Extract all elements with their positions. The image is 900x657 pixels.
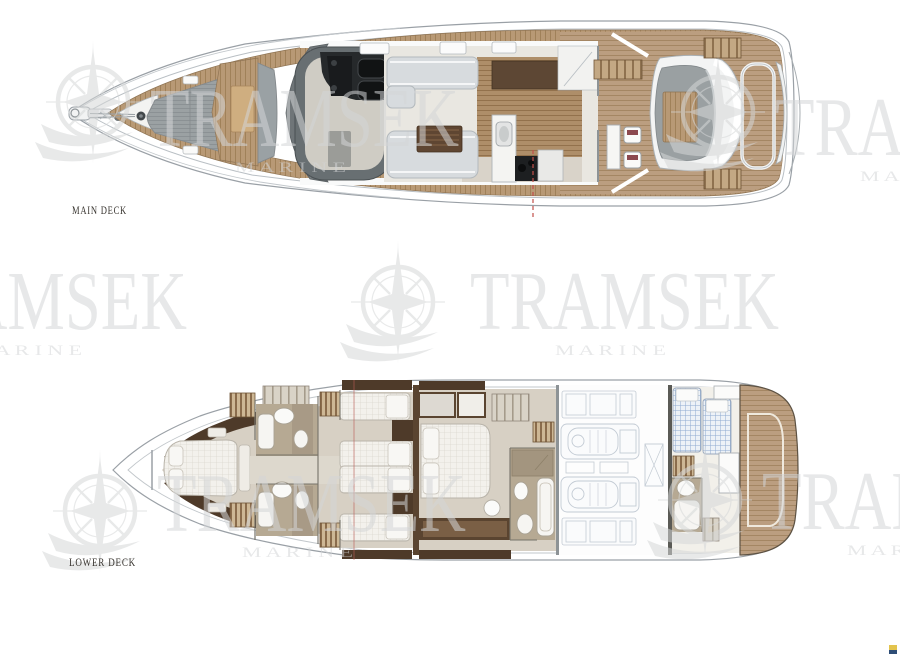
svg-text:TRAMSEK: TRAMSEK xyxy=(775,82,900,174)
svg-text:LOWER DECK: LOWER DECK xyxy=(69,557,136,569)
svg-text:TRAMSEK: TRAMSEK xyxy=(150,73,459,165)
svg-text:TRAMSEK: TRAMSEK xyxy=(470,256,779,348)
svg-text:MAIN DECK: MAIN DECK xyxy=(72,205,127,217)
svg-text:TRAMSEK: TRAMSEK xyxy=(762,456,900,548)
svg-text:TRAMSEK: TRAMSEK xyxy=(157,458,466,550)
svg-text:TRAMSEK: TRAMSEK xyxy=(0,256,187,348)
svg-text:M A R I N E: M A R I N E xyxy=(235,160,346,176)
svg-text:M A R I N E: M A R I N E xyxy=(860,169,900,185)
svg-text:M A R I N E: M A R I N E xyxy=(847,543,900,559)
svg-text:M A R I N E: M A R I N E xyxy=(242,545,353,561)
svg-text:M A R I N E: M A R I N E xyxy=(0,343,82,359)
svg-text:M A R I N E: M A R I N E xyxy=(555,343,666,359)
